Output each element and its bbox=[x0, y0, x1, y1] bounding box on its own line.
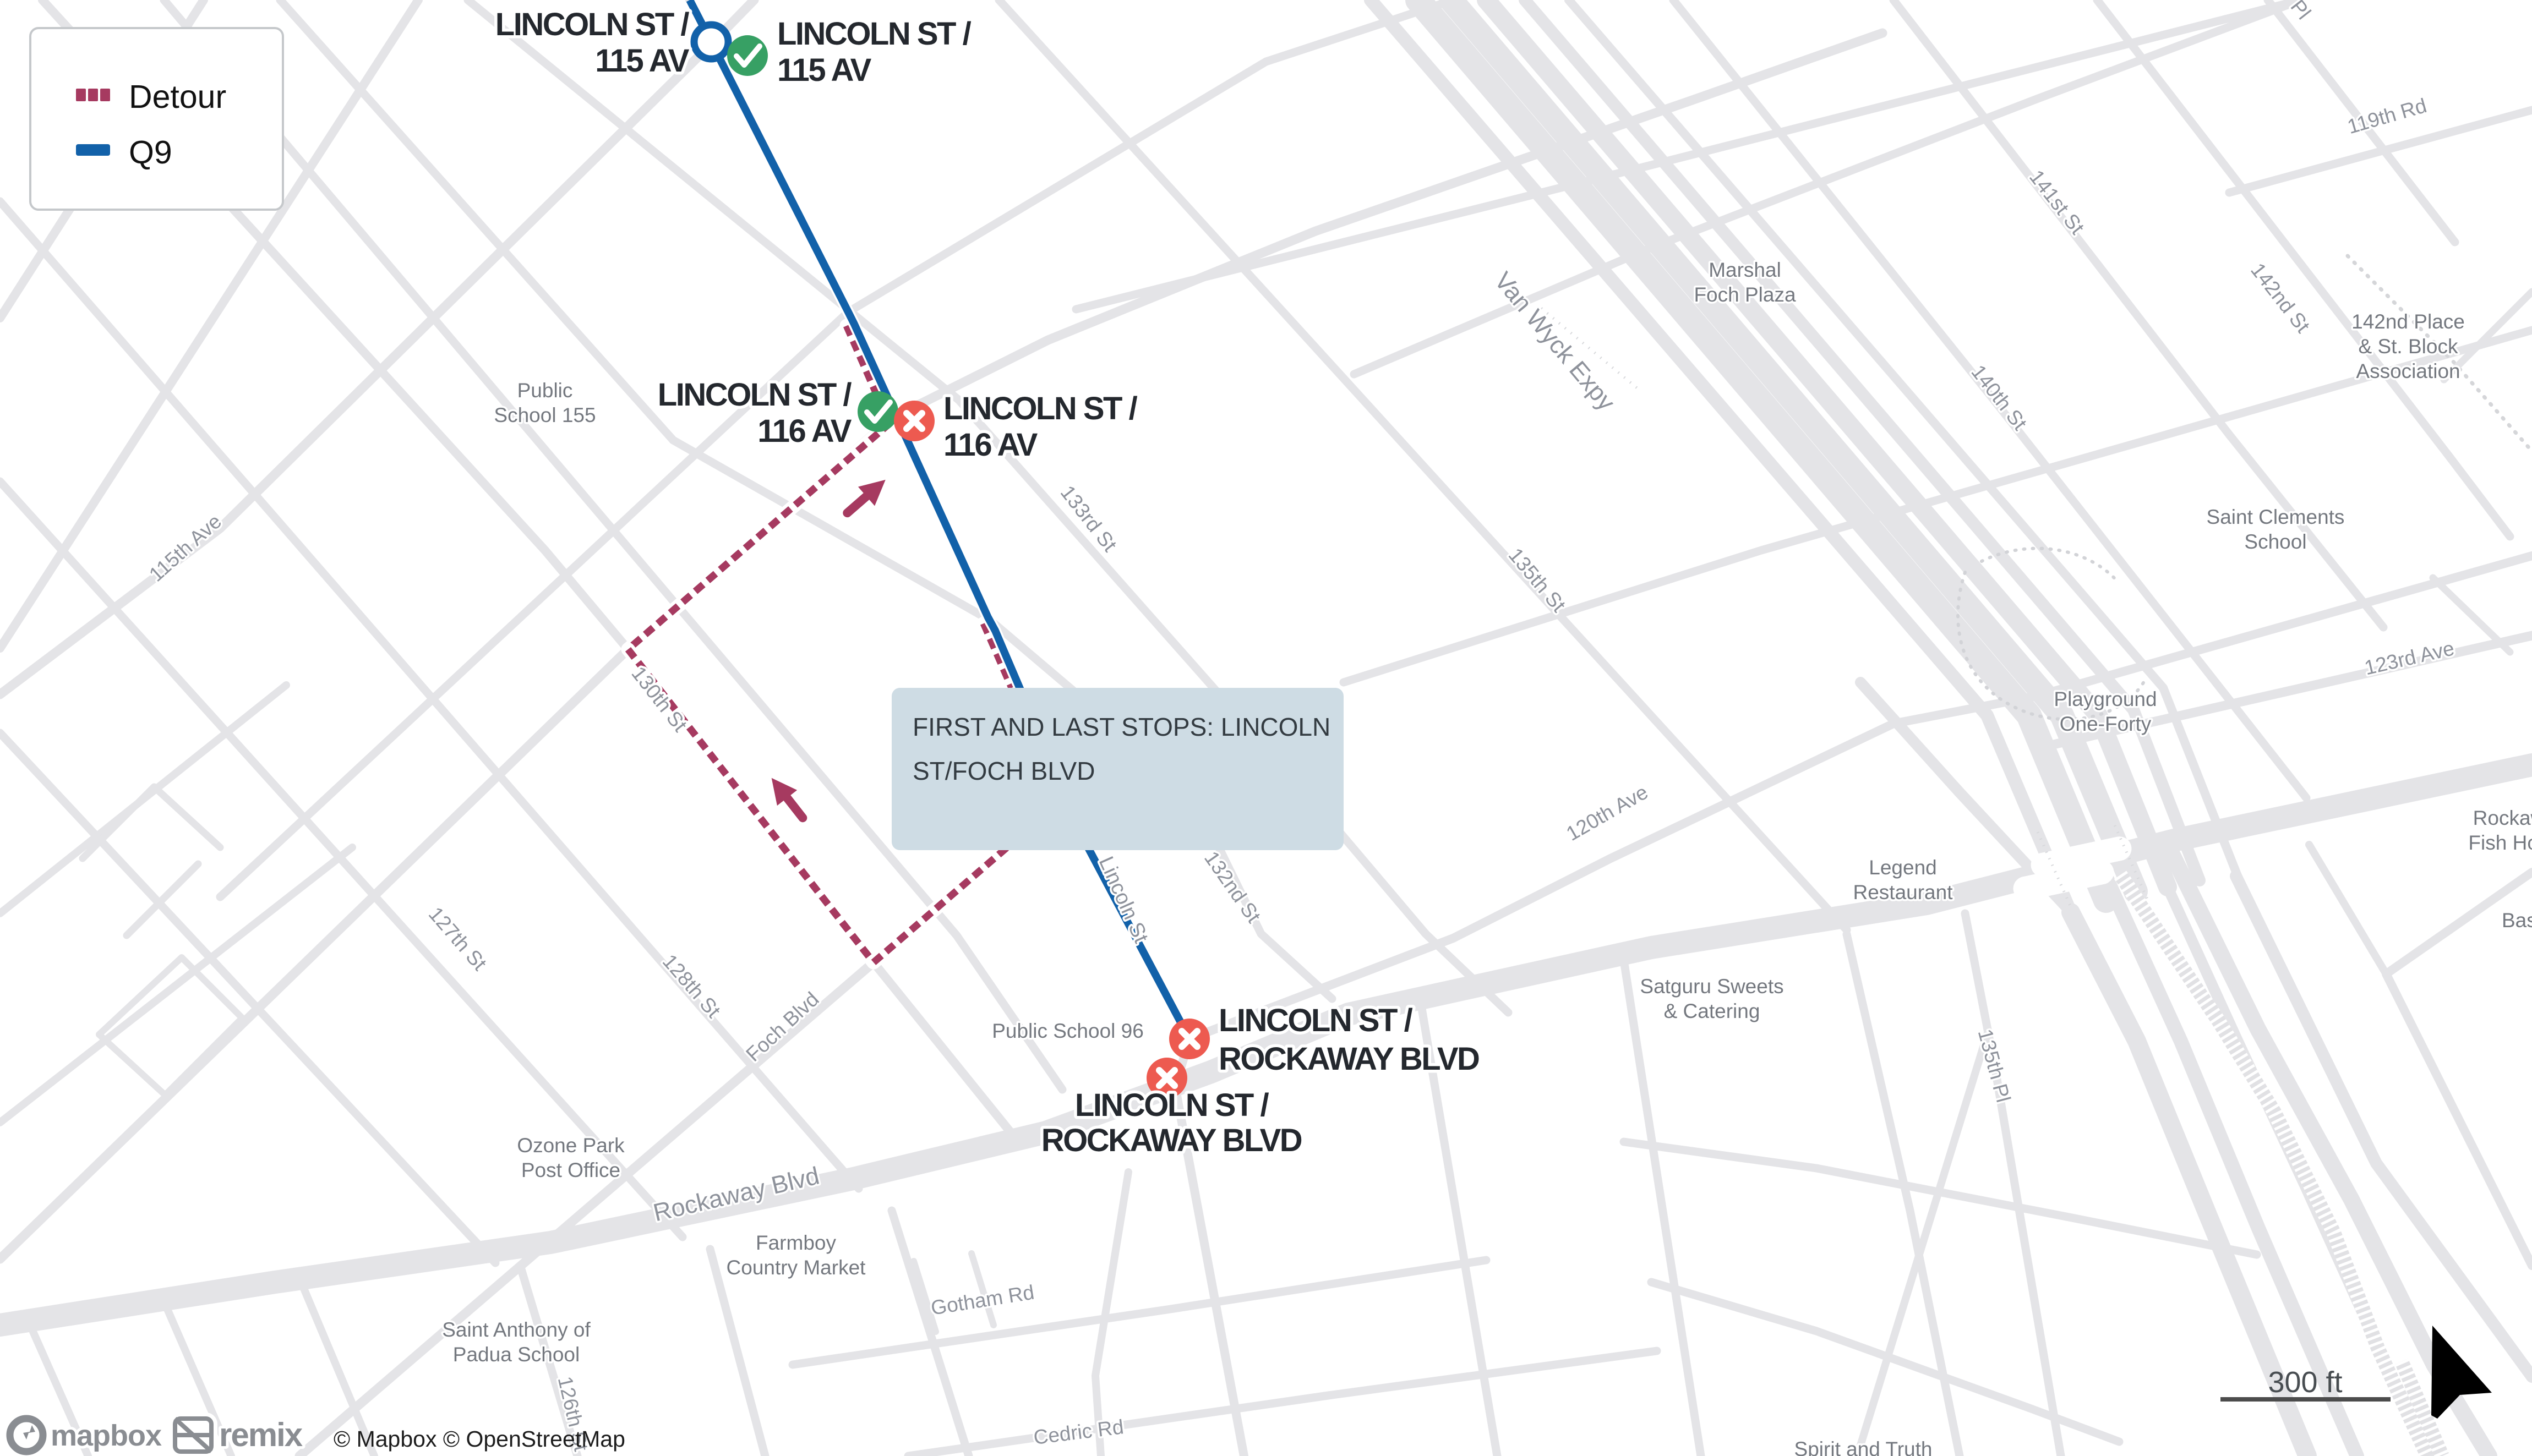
svg-text:LINCOLN ST /: LINCOLN ST / bbox=[1219, 1003, 1413, 1038]
svg-text:Rockaway: Rockaway bbox=[2473, 807, 2532, 829]
svg-text:LINCOLN ST /: LINCOLN ST / bbox=[943, 391, 1138, 426]
svg-text:Playground: Playground bbox=[2054, 688, 2157, 710]
svg-text:& St. Block: & St. Block bbox=[2359, 335, 2458, 358]
svg-text:Fish House: Fish House bbox=[2468, 831, 2532, 854]
svg-text:FIRST AND LAST STOPS: LINCOLN: FIRST AND LAST STOPS: LINCOLN bbox=[913, 713, 1330, 741]
svg-text:ST/FOCH BLVD: ST/FOCH BLVD bbox=[913, 757, 1095, 785]
svg-text:ROCKAWAY BLVD: ROCKAWAY BLVD bbox=[1041, 1123, 1302, 1158]
svg-text:Ozone Park: Ozone Park bbox=[517, 1134, 625, 1157]
svg-text:Bas: Bas bbox=[2502, 909, 2532, 932]
svg-text:LINCOLN ST /: LINCOLN ST / bbox=[658, 377, 852, 413]
svg-text:School 155: School 155 bbox=[494, 404, 596, 426]
svg-text:remix: remix bbox=[219, 1416, 303, 1453]
svg-text:Detour: Detour bbox=[129, 79, 226, 115]
svg-text:Public School 96: Public School 96 bbox=[992, 1020, 1144, 1042]
svg-text:Post Office: Post Office bbox=[521, 1159, 620, 1181]
svg-text:& Catering: & Catering bbox=[1664, 1000, 1760, 1022]
svg-text:115 AV: 115 AV bbox=[777, 52, 872, 88]
svg-text:© Mapbox © OpenStreetMap: © Mapbox © OpenStreetMap bbox=[334, 1426, 625, 1452]
svg-text:142nd Place: 142nd Place bbox=[2351, 310, 2465, 333]
svg-text:Restaurant: Restaurant bbox=[1853, 881, 1953, 904]
svg-text:School: School bbox=[2244, 530, 2306, 553]
svg-text:Q9: Q9 bbox=[129, 134, 172, 171]
svg-text:Spirit and Truth: Spirit and Truth bbox=[1794, 1438, 1933, 1456]
svg-text:LINCOLN ST /: LINCOLN ST / bbox=[495, 7, 690, 42]
svg-text:ROCKAWAY BLVD: ROCKAWAY BLVD bbox=[1219, 1041, 1479, 1077]
svg-text:116 AV: 116 AV bbox=[757, 413, 852, 449]
svg-text:mapbox: mapbox bbox=[51, 1419, 162, 1452]
svg-text:Saint Clements: Saint Clements bbox=[2207, 506, 2345, 528]
svg-text:Marshal: Marshal bbox=[1709, 259, 1781, 281]
svg-text:Farmboy: Farmboy bbox=[756, 1231, 836, 1254]
svg-text:Saint Anthony of: Saint Anthony of bbox=[442, 1318, 591, 1341]
svg-text:Country Market: Country Market bbox=[727, 1256, 866, 1279]
svg-text:Padua School: Padua School bbox=[453, 1343, 580, 1366]
svg-text:Legend: Legend bbox=[1869, 856, 1936, 879]
svg-text:115 AV: 115 AV bbox=[595, 43, 690, 79]
svg-text:116 AV: 116 AV bbox=[943, 427, 1038, 463]
svg-text:300 ft: 300 ft bbox=[2268, 1366, 2342, 1399]
svg-text:Satguru Sweets: Satguru Sweets bbox=[1640, 975, 1783, 998]
svg-text:LINCOLN ST /: LINCOLN ST / bbox=[777, 16, 972, 52]
svg-text:Foch Plaza: Foch Plaza bbox=[1694, 283, 1796, 306]
svg-text:LINCOLN ST /: LINCOLN ST / bbox=[1075, 1087, 1269, 1123]
svg-text:Public: Public bbox=[517, 379, 573, 402]
svg-text:Association: Association bbox=[2356, 360, 2460, 382]
svg-text:One-Forty: One-Forty bbox=[2060, 713, 2152, 735]
